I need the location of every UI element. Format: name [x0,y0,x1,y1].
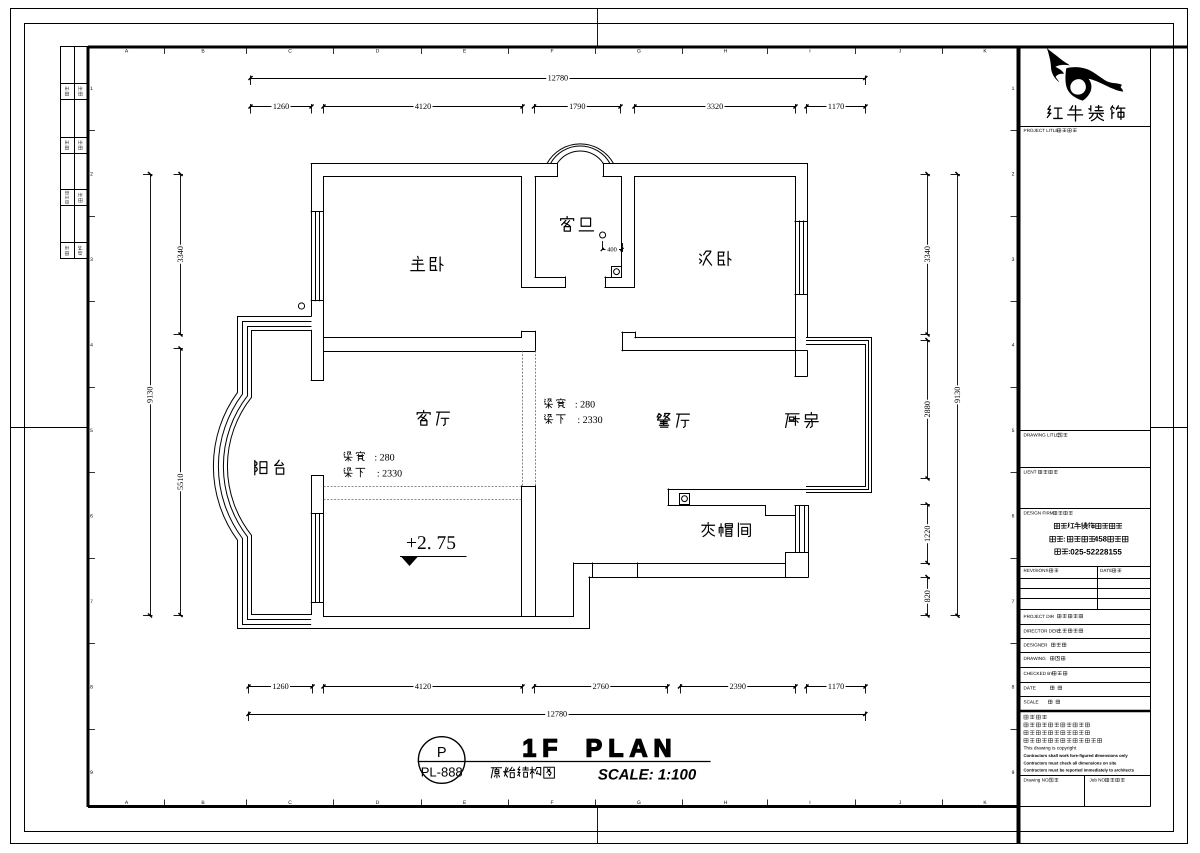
svg-text:3320: 3320 [707,102,723,111]
svg-text:DESIGNER: DESIGNER [1024,643,1049,648]
svg-text:4: 4 [1012,342,1015,348]
svg-text:Job NO: Job NO [1090,778,1106,783]
svg-text:4120: 4120 [415,682,431,691]
svg-text:1260: 1260 [272,682,288,691]
svg-text:DESIGN FIRM: DESIGN FIRM [1024,511,1054,516]
svg-text:F: F [550,49,553,55]
svg-text:PL-888: PL-888 [421,765,463,780]
svg-text:9130: 9130 [146,387,155,403]
svg-text:Drawing NO: Drawing NO [1024,778,1049,783]
svg-text:2: 2 [1012,171,1015,177]
svg-text:5: 5 [90,428,93,434]
svg-text::: : [1063,535,1065,544]
svg-text:DATE: DATE [1100,568,1112,573]
svg-text:400: 400 [607,246,617,253]
svg-text:P: P [437,745,447,761]
svg-text:DATE: DATE [1024,686,1036,691]
svg-text:5: 5 [1012,428,1015,434]
svg-text:D: D [376,800,380,806]
svg-text:Contractors must be reported i: Contractors must be reported immediately… [1024,768,1135,773]
svg-text:SCALE: 1:100: SCALE: 1:100 [598,767,697,784]
svg-text:CHECKED BY: CHECKED BY [1024,671,1054,676]
svg-text:REVISIONS: REVISIONS [1024,568,1049,573]
svg-text:1170: 1170 [828,102,844,111]
svg-text:4: 4 [90,342,93,348]
svg-text:: 280: : 280 [374,453,394,464]
svg-text:: 2330: : 2330 [577,415,602,426]
svg-text:G: G [637,49,641,55]
svg-text:3: 3 [90,257,93,263]
svg-text:: 280: : 280 [575,400,595,411]
svg-text:1220: 1220 [923,526,932,542]
svg-text:I: I [809,800,810,806]
svg-text:G: G [637,800,641,806]
svg-text:PROJECT LITLE: PROJECT LITLE [1024,128,1059,133]
svg-text:6: 6 [90,513,93,519]
svg-text:2760: 2760 [593,682,609,691]
svg-text:C: C [288,800,292,806]
svg-text:3: 3 [1012,257,1015,263]
svg-text:H: H [724,800,728,806]
svg-text:12780: 12780 [547,710,567,719]
svg-text:7: 7 [90,599,93,605]
svg-text:1: 1 [90,86,93,92]
svg-text:D: D [376,49,380,55]
svg-text:H: H [724,49,728,55]
svg-text:Contractors shall work fore-fi: Contractors shall work fore-figured dime… [1024,753,1129,758]
svg-text:7: 7 [1012,599,1015,605]
svg-text:SCALE: SCALE [1024,700,1039,705]
svg-text:LIENT: LIENT [1024,470,1037,475]
svg-text:5510: 5510 [176,474,185,490]
svg-text:9: 9 [1012,770,1015,776]
svg-text:8: 8 [1012,684,1015,690]
svg-text:This drawing is copyright: This drawing is copyright [1024,746,1077,752]
svg-text:1260: 1260 [273,102,289,111]
svg-text:12780: 12780 [548,74,568,83]
svg-text:1170: 1170 [828,682,844,691]
svg-text:9: 9 [90,770,93,776]
svg-text:3340: 3340 [923,246,932,262]
svg-text:1F PLAN: 1F PLAN [522,735,677,763]
svg-text:1790: 1790 [569,102,585,111]
svg-text:Contractors must check all dim: Contractors must check all dimensions on… [1024,760,1118,765]
svg-text:3340: 3340 [176,246,185,262]
svg-text:I: I [809,49,810,55]
svg-text:820: 820 [923,590,932,602]
svg-text:: 2330: : 2330 [377,469,402,480]
svg-text:1: 1 [1012,86,1015,92]
svg-text:025-52228155: 025-52228155 [1070,548,1122,557]
svg-text:DRAWING LITLE: DRAWING LITLE [1024,433,1060,438]
svg-text:6: 6 [1012,513,1015,519]
svg-text:2390: 2390 [730,682,746,691]
svg-text:DRAWING: DRAWING [1024,656,1047,661]
svg-text:PROJECT DIR: PROJECT DIR [1024,614,1055,619]
svg-text:9130: 9130 [953,387,962,403]
svg-text:+2. 75: +2. 75 [406,533,456,554]
svg-text:4120: 4120 [415,102,431,111]
svg-text:8: 8 [90,684,93,690]
svg-text:2: 2 [90,171,93,177]
svg-text:C: C [288,49,292,55]
svg-text:F: F [550,800,553,806]
svg-text:458: 458 [1094,535,1108,544]
svg-text:2880: 2880 [923,401,932,417]
svg-text:DIRECTOR DER: DIRECTOR DER [1024,628,1060,633]
